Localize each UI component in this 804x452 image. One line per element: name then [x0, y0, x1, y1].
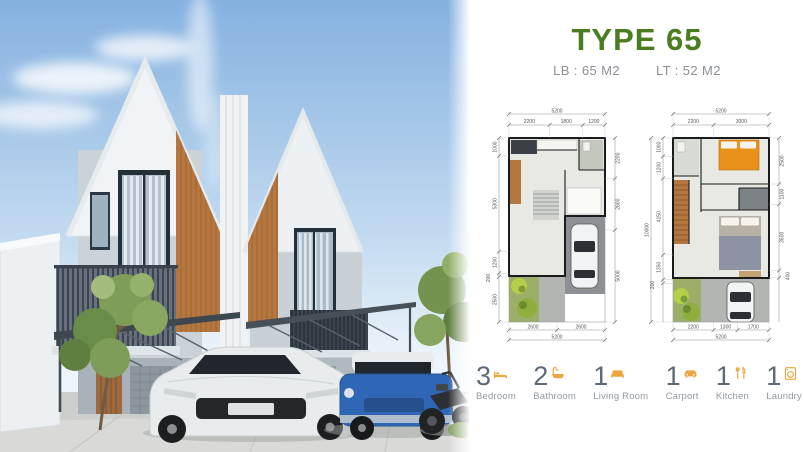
- washing-machine-icon: [783, 366, 798, 388]
- dim-label: 400: [786, 272, 792, 281]
- house-render-scene: [0, 0, 470, 452]
- amenity-label: Living Room: [593, 391, 648, 402]
- dim-label: 5200: [551, 109, 562, 115]
- stairs-upper: [673, 180, 689, 244]
- dim-label: 4150: [657, 211, 663, 222]
- amenity-bathroom: 2 Bathroom: [533, 365, 576, 402]
- dim-label: 5000: [616, 270, 622, 281]
- amenity-label: Kitchen: [716, 391, 749, 402]
- kitchen-counter: [511, 140, 537, 154]
- amenity-count: 1: [766, 365, 781, 388]
- dim-label: 2200: [524, 119, 535, 125]
- dim-label: 2600: [527, 325, 538, 331]
- dim-label: 2800: [616, 198, 622, 209]
- dim-label: 1000: [657, 141, 663, 152]
- bed-icon: [493, 366, 508, 388]
- dim-label: 1100: [780, 189, 786, 200]
- amenity-label: Bathroom: [533, 391, 576, 402]
- bedroom-2-bed: [719, 216, 761, 277]
- dim-label: 3000: [736, 119, 747, 125]
- dim-label: 2200: [688, 325, 699, 331]
- amenity-count: 2: [533, 365, 548, 388]
- amenity-living-room: 1 Living Room: [593, 365, 648, 402]
- info-panel: TYPE 65 LB : 65 M2 LT : 52 M2: [470, 0, 804, 452]
- photo-edge-fade: [448, 0, 470, 452]
- bathroom-3: [739, 188, 769, 210]
- dim-label: 5200: [715, 335, 726, 341]
- dim-label: 10000: [645, 223, 651, 237]
- floor-plans: 5200 2200 1800 1200 1000 5300 1200 200 2…: [470, 104, 804, 344]
- ground-floor-plan: 5200 2200 1800 1200 1000 5300 1200 200 2…: [479, 104, 631, 344]
- car-icon: [683, 366, 698, 388]
- dim-label: 1200: [493, 257, 499, 268]
- dim-label: 1000: [493, 141, 499, 152]
- bathroom-1: [579, 140, 603, 170]
- dim-label: 2200: [688, 119, 699, 125]
- amenity-label: Carport: [666, 391, 699, 402]
- dim-label: 1800: [561, 119, 572, 125]
- amenity-count: 1: [716, 365, 731, 388]
- dim-label: 1200: [657, 162, 663, 173]
- dim-label: 1300: [720, 325, 731, 331]
- dim-label: 5300: [493, 198, 499, 209]
- dim-label: 2500: [780, 155, 786, 166]
- dim-label: 3600: [780, 232, 786, 243]
- stair-ground: [509, 160, 521, 204]
- amenity-label: Bedroom: [476, 391, 516, 402]
- shower-icon: [550, 366, 565, 388]
- dim-label: 2600: [575, 325, 586, 331]
- living-room-rug: [533, 190, 559, 220]
- dim-label: 2500: [493, 294, 499, 305]
- dim-label: 1700: [748, 325, 759, 331]
- dim-label: 1350: [657, 262, 663, 273]
- dim-label: 5200: [715, 109, 726, 115]
- amenity-count: 1: [593, 365, 608, 388]
- sofa-icon: [610, 366, 625, 388]
- bedroom-1-bed: [719, 140, 759, 170]
- car-top-view-2: [727, 282, 754, 322]
- amenity-label: Laundry: [766, 391, 802, 402]
- amenities-row: 3 Bedroom 2 Bathroom 1: [476, 365, 802, 402]
- dim-label: 200: [486, 274, 492, 283]
- dim-label: 1200: [588, 119, 599, 125]
- amenity-laundry: 1 Laundry: [766, 365, 802, 402]
- flyer: TYPE 65 LB : 65 M2 LT : 52 M2: [0, 0, 804, 452]
- amenity-count: 1: [666, 365, 681, 388]
- house-render: [0, 0, 470, 452]
- utensils-icon: [733, 366, 748, 388]
- amenity-bedroom: 3 Bedroom: [476, 365, 516, 402]
- land-area-label: LT : 52 M2: [656, 63, 721, 78]
- area-subtitle: LB : 65 M2 LT : 52 M2: [470, 63, 804, 78]
- dining-table: [567, 188, 601, 214]
- dim-label: 2200: [616, 152, 622, 163]
- amenity-kitchen: 1 Kitchen: [716, 365, 749, 402]
- dim-label: 200: [650, 281, 656, 290]
- car-top-view: [571, 224, 598, 288]
- building-area-label: LB : 65 M2: [553, 63, 620, 78]
- dim-label: 5200: [551, 335, 562, 341]
- amenity-count: 3: [476, 365, 491, 388]
- amenity-carport: 1 Carport: [666, 365, 699, 402]
- upper-floor-plan: 5200 2200 3000 10000 1000 1200 4150 1350…: [643, 104, 795, 344]
- type-title: TYPE 65: [470, 22, 804, 58]
- boundary-wall: [0, 233, 60, 432]
